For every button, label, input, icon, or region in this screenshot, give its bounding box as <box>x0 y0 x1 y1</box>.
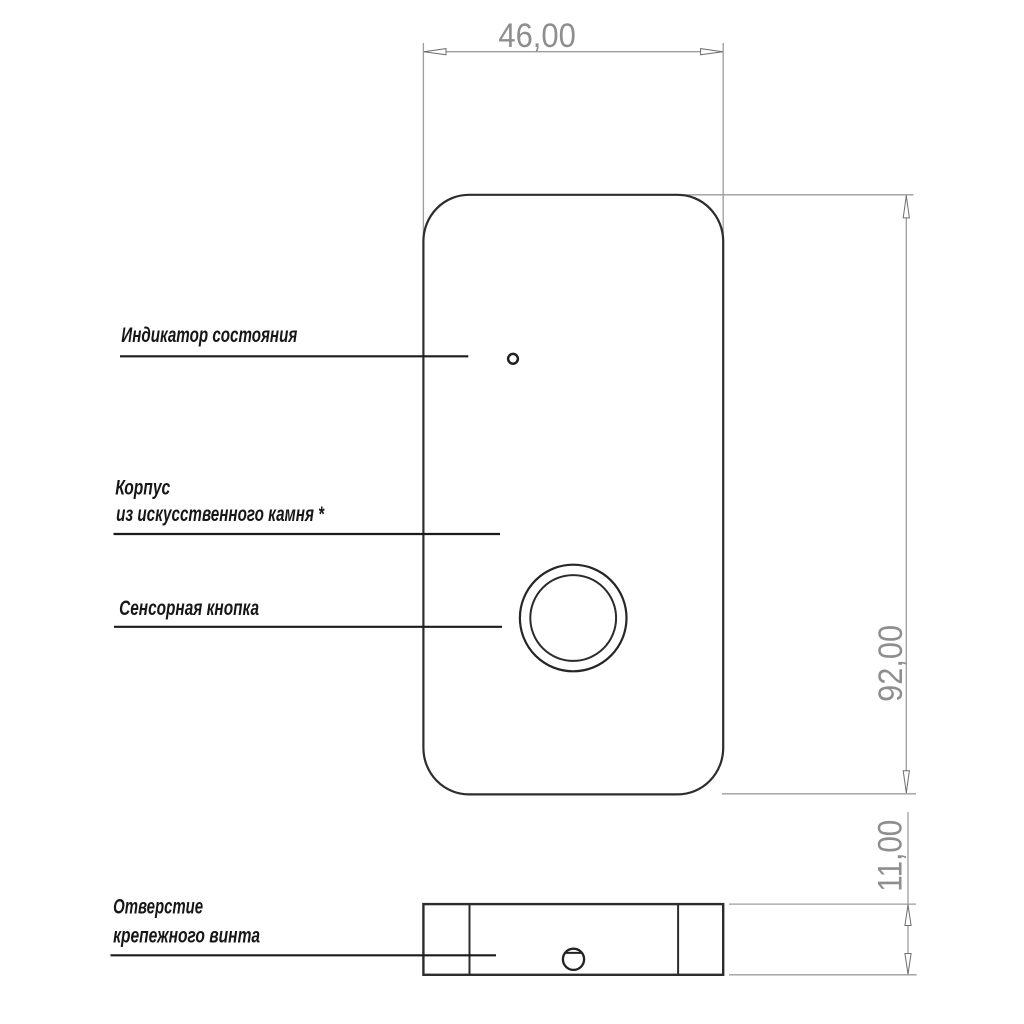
svg-text:Корпус: Корпус <box>115 475 170 499</box>
svg-text:из искусственного камня *: из искусственного камня * <box>116 502 325 526</box>
svg-text:Отверстие: Отверстие <box>113 895 203 919</box>
svg-text:крепежного винта: крепежного винта <box>113 923 260 947</box>
svg-text:46,00: 46,00 <box>498 17 576 55</box>
svg-text:Индикатор состояния: Индикатор состояния <box>121 323 297 347</box>
svg-text:Сенсорная кнопка: Сенсорная кнопка <box>119 596 259 620</box>
svg-text:92,00: 92,00 <box>872 625 910 702</box>
svg-text:11,00: 11,00 <box>872 820 910 892</box>
